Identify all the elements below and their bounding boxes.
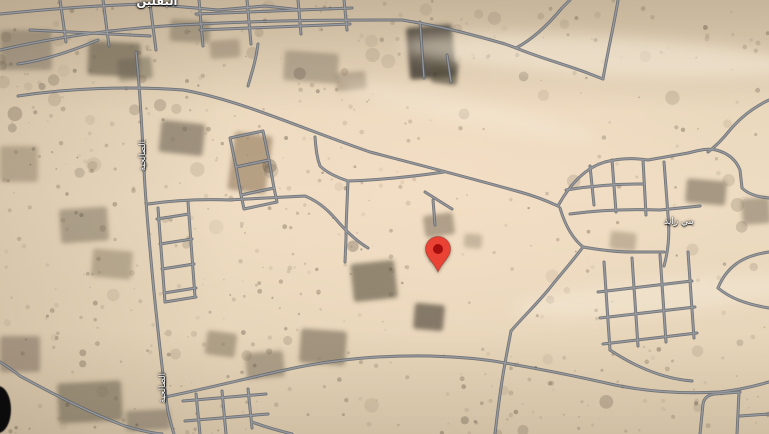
map-viewport[interactable]: البقلين بني زايد الصالحية الصالحية bbox=[0, 0, 769, 434]
place-label-district: بني زايد bbox=[664, 217, 694, 227]
farm-patches bbox=[0, 19, 769, 431]
road-label-left: الصالحية bbox=[138, 141, 148, 171]
pin-dot bbox=[433, 244, 443, 254]
road-label-left-lower: الصالحية bbox=[158, 373, 168, 403]
pin-body bbox=[426, 237, 451, 273]
satellite-imagery bbox=[0, 0, 769, 434]
location-pin-marker[interactable] bbox=[420, 234, 456, 274]
place-label-town: البقلين bbox=[137, 0, 178, 8]
